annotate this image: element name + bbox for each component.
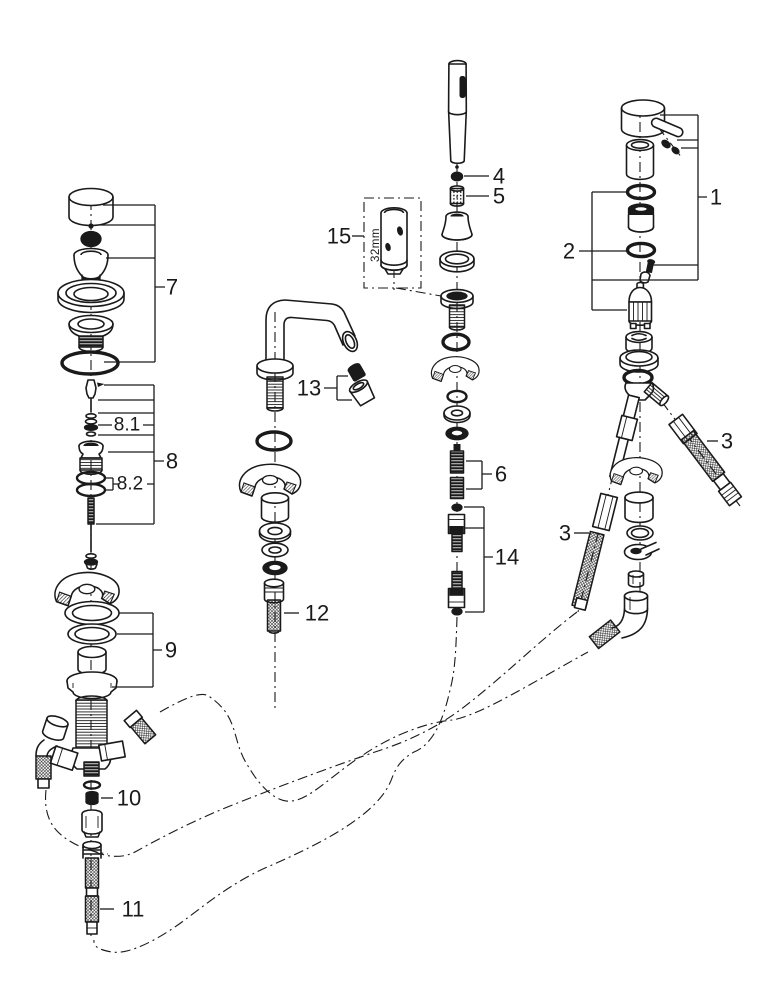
valve-assembly: [572, 100, 741, 649]
bracket-9: [112, 613, 162, 687]
spout-assembly: [240, 300, 377, 633]
tee-oring: [84, 781, 100, 788]
rod-cartridge: [79, 441, 103, 474]
part-label-1: 1: [710, 185, 722, 210]
part-label-8-2: 8.2: [117, 474, 143, 495]
lift-rod-assembly: [77, 380, 105, 569]
part-label-5: 5: [493, 184, 505, 209]
bracket-6: [466, 461, 492, 489]
holder-nut: [446, 427, 468, 439]
part-label-8: 8: [166, 449, 178, 474]
routing-line-supply-hose: [88, 612, 577, 856]
shower-holder-cone: [442, 212, 472, 240]
part-label-12: 12: [305, 601, 329, 626]
cartridge-clip: [640, 272, 650, 283]
bracket-14: [464, 507, 493, 612]
bracket-2: [579, 192, 627, 310]
holder-oring-large: [443, 334, 469, 350]
cartridge-oring-upper: [628, 185, 655, 198]
hand-shower: [449, 61, 467, 169]
hose-11: [83, 842, 101, 935]
part-label-3-lower: 3: [559, 521, 571, 546]
slotted-washer: [625, 542, 661, 560]
handle-cap: [622, 100, 685, 138]
tool-15: 32mm: [364, 198, 421, 288]
elbow-hose: [589, 591, 647, 648]
bracket-8: [96, 385, 164, 524]
shower-gasket: [451, 172, 462, 181]
valve-flange: [620, 350, 658, 372]
mounting-horseshoe-mid: [240, 464, 301, 496]
waste-ball: [81, 232, 101, 247]
bracket-13: [324, 376, 352, 400]
part-label-10: 10: [117, 786, 141, 811]
socket-tool: [381, 208, 407, 274]
part-label-13: 13: [297, 376, 321, 401]
part-label-9: 9: [165, 638, 177, 663]
part-label-3-upper: 3: [721, 429, 733, 454]
cartridge: [629, 283, 652, 329]
exploded-parts-diagram: 32mm: [0, 0, 775, 1000]
part-label-7: 7: [166, 275, 178, 300]
diagram-svg: 32mm: [0, 0, 775, 1000]
tool-size-label: 32mm: [370, 228, 382, 262]
mounting-horseshoe-left: [55, 573, 119, 606]
holder-threaded-base: [441, 290, 473, 330]
compression-olive: [86, 792, 98, 805]
shower-filter-insert: [450, 186, 463, 206]
mounting-horseshoe-center: [431, 357, 479, 382]
holder-washer: [444, 406, 470, 423]
spout-oring: [257, 432, 291, 450]
handle-screws: [661, 139, 681, 155]
handshower-assembly: [431, 61, 479, 615]
part-label-8-1: 8.1: [114, 415, 140, 436]
small-nut: [629, 571, 644, 587]
part-label-15: 15: [327, 224, 351, 249]
part-label-6: 6: [495, 462, 507, 487]
mounting-kit-left: [65, 602, 119, 699]
compression-nut: [82, 810, 102, 837]
tee-angled-port: [124, 710, 156, 744]
cartridge-oring-lower: [628, 243, 655, 256]
cartridge-ring: [629, 204, 654, 232]
waste-cone: [74, 249, 108, 283]
mounting-kit-mid: [260, 493, 291, 575]
hose-12: [265, 579, 284, 633]
waste-drain-body: [69, 316, 113, 352]
mounting-horseshoe-right: [610, 458, 662, 485]
routing-line-tee-to-elbow: [160, 652, 588, 801]
handle-sleeve: [627, 140, 654, 180]
cap-screw: [88, 223, 93, 228]
tee-body: [50, 696, 156, 776]
popup-waste-assembly: [36, 189, 156, 935]
part-label-2: 2: [563, 239, 575, 264]
pullout-hose-14: [449, 504, 465, 615]
threaded-rods-6: [451, 444, 464, 499]
cartridge-screw: [646, 259, 655, 272]
waste-oring: [62, 352, 118, 374]
part-label-11: 11: [122, 897, 145, 922]
part-label-14: 14: [495, 545, 519, 570]
